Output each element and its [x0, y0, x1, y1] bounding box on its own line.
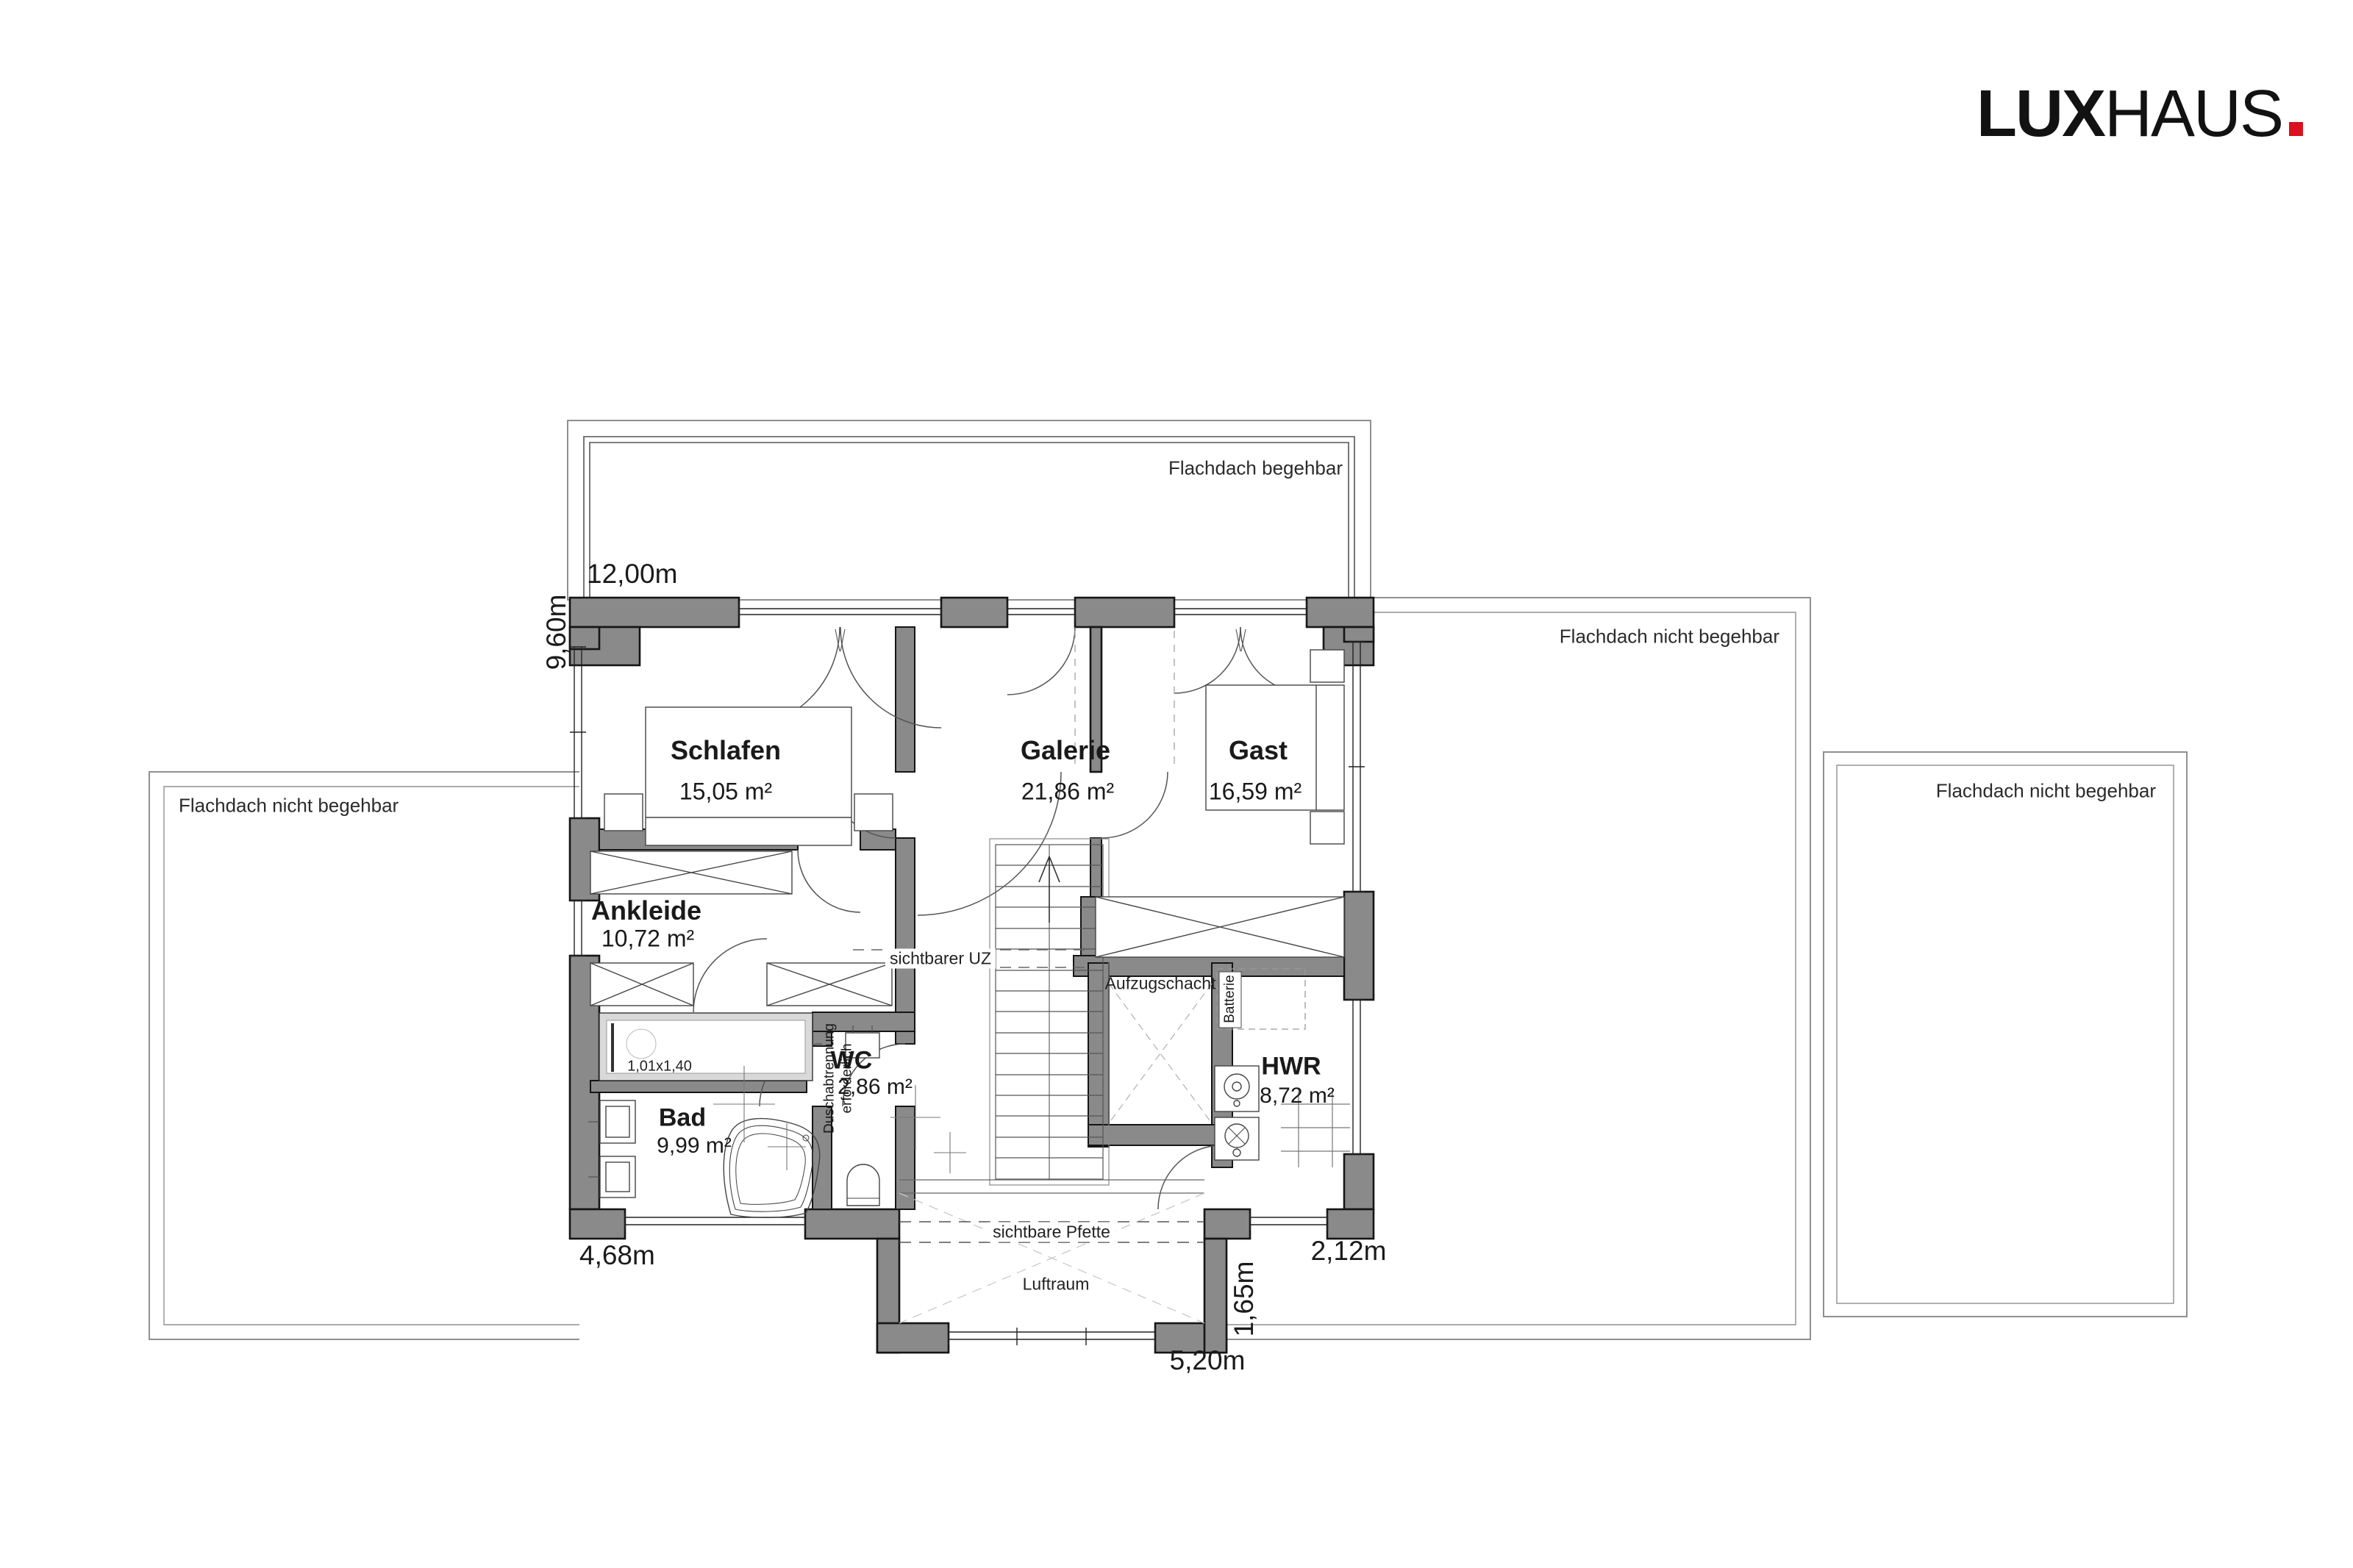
dim-left: 9,60m: [541, 595, 572, 670]
room-area-hwr: 8,72 m²: [1260, 1084, 1335, 1109]
roof-outlines: [149, 420, 2187, 1339]
annotation-duschabtrennung-line2: erforderlich: [838, 1023, 856, 1134]
annotation-shower-size: 1,01x1,40: [627, 1059, 692, 1075]
roof-label-left: Flachdach nicht begehbar: [179, 795, 399, 817]
room-label-bad: Bad: [659, 1104, 706, 1133]
logo-dot: [2289, 122, 2303, 136]
annotation-sichtbarer-uz: sichtbarer UZ: [885, 949, 996, 969]
room-label-gast: Gast: [1229, 735, 1288, 766]
room-area-galerie: 21,86 m²: [1021, 778, 1114, 806]
floorplan-page: LUXHAUS Flachdach begehbar Flachdach nic…: [0, 0, 2353, 1568]
roof-label-far-right: Flachdach nicht begehbar: [1936, 780, 2156, 803]
room-area-schlafen: 15,05 m²: [679, 778, 772, 806]
annotation-duschabtrennung-line1: Duschabtrennung: [821, 1023, 838, 1134]
roof-label-right: Flachdach nicht begehbar: [1560, 626, 1779, 648]
room-label-schlafen: Schlafen: [671, 735, 781, 766]
luxhaus-logo: LUXHAUS: [1977, 76, 2303, 152]
logo-lux: LUX: [1977, 77, 2104, 151]
room-area-bad: 9,99 m²: [657, 1134, 732, 1159]
room-label-galerie: Galerie: [1021, 735, 1110, 766]
roof-label-top: Flachdach begehbar: [1168, 457, 1343, 480]
logo-haus: HAUS: [2104, 77, 2282, 151]
annotation-duschabtrennung: Duschabtrennung erforderlich: [821, 1023, 856, 1134]
toilet: [847, 1164, 879, 1206]
room-label-hwr: HWR: [1261, 1053, 1321, 1081]
bathtub: [724, 1119, 820, 1218]
room-label-ankleide: Ankleide: [591, 895, 701, 926]
annotation-aufzugschacht: Aufzugschacht: [1105, 974, 1216, 994]
dim-bottom-left: 4,68m: [579, 1240, 655, 1271]
annotation-luftraum: Luftraum: [1023, 1275, 1090, 1295]
dim-top: 12,00m: [587, 559, 677, 590]
room-area-gast: 16,59 m²: [1209, 778, 1302, 806]
dim-right-vertical: 1,65m: [1229, 1261, 1260, 1337]
dim-bottom-right: 2,12m: [1311, 1236, 1387, 1267]
annotation-batterie: Batterie: [1222, 975, 1238, 1023]
dim-bottom-center: 5,20m: [1170, 1345, 1246, 1376]
room-area-ankleide: 10,72 m²: [601, 926, 694, 953]
annotation-sichtbare-pfette: sichtbare Pfette: [988, 1222, 1115, 1242]
